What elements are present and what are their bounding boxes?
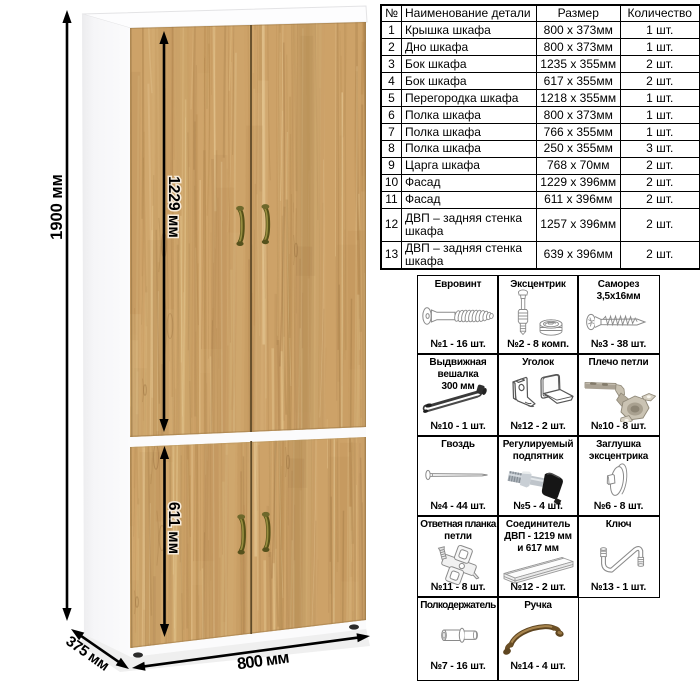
svg-text:1229 мм: 1229 мм <box>165 176 182 238</box>
svg-text:611 мм: 611 мм <box>165 502 182 554</box>
svg-text:1900 мм: 1900 мм <box>48 174 66 240</box>
